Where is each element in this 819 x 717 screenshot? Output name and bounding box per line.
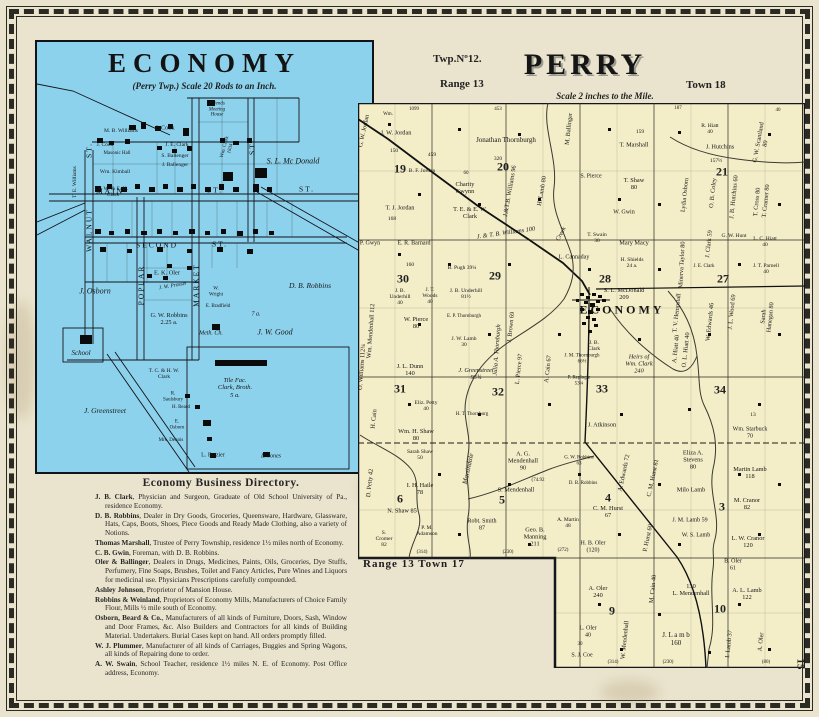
map-label: Jonathan Thornburgh <box>476 137 536 145</box>
map-label: J. Greenstreet <box>84 407 126 415</box>
building-block <box>191 184 196 189</box>
building-block <box>205 231 210 235</box>
building-block <box>207 437 212 441</box>
building-block <box>95 229 101 234</box>
town-block <box>598 295 602 298</box>
map-label: H. T. Thornburg <box>456 412 488 418</box>
section-number: 5 <box>499 493 505 508</box>
map-label: Eliza A. Stevens 80 <box>683 449 703 470</box>
house-dot <box>658 203 661 206</box>
map-label: B. F. Jordan <box>409 168 435 174</box>
map-label: Charity Gwynn <box>456 181 475 195</box>
map-label: 40 <box>776 108 781 114</box>
map-label: J. M. Thornburgh 66½ <box>564 353 599 364</box>
map-label: Mary Macy <box>619 239 649 246</box>
section-number: 6 <box>397 492 403 507</box>
house-dot <box>778 203 781 206</box>
building-block <box>125 139 130 144</box>
map-label: T. E. Williams <box>72 166 78 198</box>
map-label: E. R. Barnard <box>398 241 431 248</box>
town-block <box>586 296 590 299</box>
map-label: J. Hutchins <box>706 143 734 150</box>
map-label: P. Gwyn <box>360 241 380 248</box>
map-label: N. Shaw 85 <box>387 507 417 514</box>
map-label: A. G. Mendenhall 90 <box>508 450 538 471</box>
page-number: 15 <box>795 659 807 670</box>
map-label: J. Osborn <box>79 288 111 297</box>
paper-stain <box>6 300 36 420</box>
section-number: 20 <box>497 160 509 175</box>
building-block <box>135 184 140 189</box>
building-block <box>100 247 106 252</box>
building-block <box>157 146 162 150</box>
section-number: 19 <box>394 162 406 177</box>
town-block <box>594 324 598 327</box>
map-label: L. C. Hiatt 40 <box>753 236 777 248</box>
map-label: T. C. & H. W. Clark <box>149 368 179 380</box>
map-label: T. Marshall <box>620 141 649 148</box>
section-number: 29 <box>489 269 501 284</box>
atlas-page: ECONOMY (Perry Twp.) Scale 20 Rods to an… <box>0 0 819 717</box>
house-dot <box>620 413 623 416</box>
map-label: T. J. Jordan <box>386 204 415 211</box>
house-dot <box>508 263 511 266</box>
map-label: Heirs of Wm. Clark 240 <box>625 353 652 374</box>
building-block <box>189 229 195 234</box>
section-number: 31 <box>394 382 406 397</box>
range-town-label: Range 13 Town 17 <box>363 558 465 570</box>
map-label: J. B. Underhill 40 <box>389 288 410 306</box>
building-block <box>247 249 253 254</box>
building-block <box>212 324 220 330</box>
map-label: J. L a m b 160 <box>662 632 690 648</box>
directory-title: Economy Business Directory. <box>95 477 347 489</box>
map-label: (314) <box>608 660 619 666</box>
economy-map-title: ECONOMY <box>37 48 372 79</box>
map-label: (230) <box>503 550 514 556</box>
house-dot <box>618 533 621 536</box>
map-label: T. E. & E. W. Clark <box>453 206 487 220</box>
map-label: A. Martin 48 <box>557 517 579 529</box>
map-label: J. W. Good <box>257 329 292 338</box>
section-number: 27 <box>717 272 729 287</box>
map-label: L. Cannaday <box>559 255 590 262</box>
map-label: Mrs. Dennis <box>159 438 184 444</box>
map-label: I. H. Haile 78 <box>407 482 434 496</box>
map-label: 187 <box>674 106 682 112</box>
building-block <box>167 264 172 268</box>
map-label: 13 <box>750 412 756 418</box>
map-label: W. Gwin <box>613 210 634 217</box>
section-number: 33 <box>596 382 608 397</box>
perry-map-title: PERRY <box>500 48 670 82</box>
house-dot <box>598 603 601 606</box>
town-block <box>580 293 584 296</box>
map-label: M. B. Williams <box>104 128 138 134</box>
building-block <box>149 187 155 192</box>
map-label: SECOND <box>136 241 178 250</box>
building-block <box>163 184 168 189</box>
map-label: (74.92 <box>532 478 545 484</box>
building-block <box>141 231 147 235</box>
map-label: Milo Lamb <box>677 486 706 493</box>
map-label: J. Greenstreet 95¾ <box>458 367 493 381</box>
house-dot <box>488 333 491 336</box>
house-dot <box>688 408 691 411</box>
building-block <box>80 335 92 344</box>
economy-town-map: ECONOMY (Perry Twp.) Scale 20 Rods to an… <box>35 40 374 474</box>
paper-stain <box>600 680 660 704</box>
map-label: 459 <box>428 152 436 158</box>
town-block <box>588 330 592 333</box>
map-label: J. L. Dunn 140 <box>397 363 424 377</box>
house-dot <box>678 543 681 546</box>
house-dot <box>558 333 561 336</box>
map-label: J. T. Parnell 40 <box>753 263 779 275</box>
map-label: Wm. H. Shaw 80 <box>398 428 434 442</box>
map-label: G. W. Robbins 63 <box>564 455 593 466</box>
map-label: E. Bradfield <box>206 304 230 310</box>
house-dot <box>418 193 421 196</box>
building-block <box>237 231 243 236</box>
building-block <box>267 187 272 192</box>
map-label: Geo. B. Manning 211 <box>524 526 547 547</box>
building-block <box>253 229 258 234</box>
economy-map-subtitle: (Perry Twp.) Scale 20 Rods to an Inch. <box>37 81 372 91</box>
map-label: L. Jones <box>261 454 281 461</box>
map-label: Tile Fac. Clark, Broth. 5 a. <box>218 377 252 399</box>
house-dot <box>778 333 781 336</box>
map-label: MARKET <box>192 263 201 307</box>
map-label: B. Oler 61 <box>724 558 742 571</box>
house-dot <box>768 648 771 651</box>
directory-entry: C. B. Gwin, Foreman, with D. B. Robbins. <box>95 549 347 558</box>
map-label: School <box>71 350 90 358</box>
section-number: 10 <box>714 602 726 617</box>
map-label: S. J. Coe <box>571 653 592 660</box>
directory-entry: Thomas Marshall, Trustee of Perry Townsh… <box>95 539 347 548</box>
house-dot <box>738 603 741 606</box>
house-dot <box>758 403 761 406</box>
building-block <box>255 168 267 178</box>
section-number: 4 <box>605 491 611 506</box>
map-label: 7 a. <box>252 312 261 319</box>
business-directory: Economy Business Directory. J. B. Clark,… <box>95 477 347 679</box>
map-label: Sarah Shaw 50 <box>407 449 433 461</box>
map-label: Masonic Hall <box>103 151 130 157</box>
house-dot <box>398 253 401 256</box>
map-label: Friends Meeting House <box>209 102 225 119</box>
map-label: S. L. Mc Donald <box>267 158 320 167</box>
map-label: WALNUT <box>85 208 94 252</box>
map-label: J. E. Clark <box>165 142 188 148</box>
house-dot <box>658 268 661 271</box>
map-label: J. W. Jordan <box>381 129 412 136</box>
map-label: (314) <box>417 550 428 556</box>
directory-entry: A. W. Swain, School Teacher, residence 1… <box>95 660 347 678</box>
map-label: ST. <box>299 185 315 194</box>
building-block <box>177 187 183 192</box>
building-block <box>183 128 189 136</box>
map-label: 1099 <box>409 107 419 113</box>
map-label: H. B. Oler (120) <box>581 540 606 553</box>
directory-entries: J. B. Clark, Physician and Surgeon, Grad… <box>95 493 347 678</box>
building-block <box>157 229 162 234</box>
map-label: G. W. Robbins 2.25 a. <box>150 312 187 326</box>
map-label: Robt. Smith 87 <box>467 518 496 531</box>
map-label: Wm. <box>383 112 393 118</box>
map-label: 150 <box>390 148 398 154</box>
perry-township-map: Wm.109945318740J. W. Jordan150459G. W. J… <box>358 103 805 668</box>
map-label: T. Shaw 80 <box>624 177 645 191</box>
section-number: 9 <box>609 604 615 619</box>
town-block <box>592 293 596 296</box>
map-label: D. B. Robbins <box>569 481 598 487</box>
map-label: S. Pierce <box>580 174 601 181</box>
map-label: E. P. Thornburgh <box>447 314 481 320</box>
map-label: A. L. Lamb 122 <box>732 587 761 601</box>
map-label: W. S. Lamb <box>682 533 710 540</box>
house-dot <box>388 123 391 126</box>
building-block <box>203 420 211 426</box>
perry-twp-number: Twp.Nº12. <box>433 53 482 65</box>
house-dot <box>438 473 441 476</box>
house-dot <box>658 483 661 486</box>
map-label: Martin Lamb 118 <box>733 466 766 480</box>
house-dot <box>458 128 461 131</box>
building-block <box>147 274 152 278</box>
map-label: S. Ballenger <box>161 153 188 159</box>
house-dot <box>408 403 411 406</box>
map-label: (272) <box>558 548 569 554</box>
map-label: Wm. Starbuck 70 <box>733 426 768 439</box>
map-label: 30 <box>578 642 583 648</box>
town-block <box>582 322 586 325</box>
map-label: (230) <box>663 660 674 666</box>
building-block <box>215 360 267 366</box>
map-label: J. Cook <box>97 142 114 148</box>
map-label: H. Shields 24 a. <box>621 257 644 269</box>
map-label: 168 <box>388 216 396 222</box>
map-label: J. Ballenger <box>162 162 188 168</box>
map-label: E. Osborn <box>170 419 185 430</box>
house-dot <box>678 131 681 134</box>
map-label: A. Oler 240 <box>589 585 608 599</box>
directory-entry: Osborn, Beard & Co., Manufacturers of al… <box>95 614 347 640</box>
map-label: Eliz. Petty 40 <box>415 400 438 412</box>
map-label: J. M. Lamb 59 <box>672 518 707 525</box>
map-label: J. T. Woods 40 <box>422 287 437 305</box>
town-block <box>592 318 596 321</box>
house-dot <box>708 651 711 654</box>
map-label: C. M. Hurst 67 <box>593 505 623 519</box>
map-label: J. Atkinson <box>588 421 616 428</box>
section-number: 32 <box>492 385 504 400</box>
building-block <box>221 229 226 234</box>
map-label: R. Saulsbury <box>163 391 183 402</box>
map-label: S. Cromer 82 <box>376 530 393 548</box>
map-label: J. Cook <box>155 124 174 131</box>
house-dot <box>608 128 611 131</box>
building-block <box>125 229 130 234</box>
directory-entry: Robbins & Weinland, Proprietors of Econo… <box>95 596 347 614</box>
map-label: 160 <box>406 262 414 268</box>
map-label: S. L. McDonald 209 <box>604 287 645 301</box>
section-number: 28 <box>599 272 611 287</box>
directory-entry: J. B. Clark, Physician and Surgeon, Grad… <box>95 493 347 511</box>
building-block <box>127 249 132 253</box>
section-number: 30 <box>397 272 409 287</box>
map-label: G. W. Hunt <box>721 233 746 239</box>
map-label: Meth. Ch. <box>199 331 223 338</box>
map-label: 159 <box>636 129 644 135</box>
map-label: T. Swain 30 <box>587 232 606 244</box>
directory-entry: Oler & Ballinger, Dealers in Drugs, Medi… <box>95 558 347 584</box>
map-label: (80) <box>762 660 770 666</box>
directory-entry: Ashley Johnson, Proprietor of Mansion Ho… <box>95 586 347 595</box>
map-label: ST. <box>212 240 228 249</box>
perry-scale-label: Scale 2 inches to the Mile. <box>515 91 695 101</box>
map-label: Wm. Kimball <box>100 169 130 175</box>
building-block <box>253 184 259 192</box>
map-label: ECONOMY <box>580 303 665 316</box>
map-label: R. Hiatt 40 <box>701 123 718 135</box>
map-label: P. M. Adamson <box>416 525 437 537</box>
map-label: POPLAR <box>137 265 146 306</box>
map-label: H. Beard <box>172 405 190 411</box>
house-dot <box>738 263 741 266</box>
map-label: M. Cranor 82 <box>734 497 760 511</box>
map-label: MAIN <box>96 187 124 196</box>
house-dot <box>458 533 461 536</box>
house-dot <box>618 198 621 201</box>
map-label: B. Pugh 39¼ <box>448 265 477 271</box>
building-block <box>187 249 192 253</box>
map-label: W. Pierce 80 <box>404 316 428 330</box>
house-dot <box>548 403 551 406</box>
map-label: L. Frazier <box>201 453 225 460</box>
building-block <box>223 172 233 181</box>
building-block <box>163 276 168 280</box>
perry-range-label: Range 13 <box>440 78 484 90</box>
house-dot <box>638 338 641 341</box>
map-label: E. K. Oler <box>154 269 180 276</box>
section-number: 34 <box>714 383 726 398</box>
map-label: L. Oler 40 <box>579 625 596 638</box>
map-label: J. W. Lamb 30 <box>451 336 476 348</box>
map-label: P. Replogle 53¼ <box>568 375 591 386</box>
map-label: 157½ <box>710 158 722 164</box>
map-label: J. B. Underhill 81½ <box>450 288 482 300</box>
map-label: ST. <box>248 139 257 155</box>
directory-entry: W. J. Plummer, Manufacturer of all kinds… <box>95 642 347 660</box>
house-dot <box>658 613 661 616</box>
map-label: 453 <box>494 107 502 113</box>
section-number: 21 <box>716 165 728 180</box>
house-dot <box>588 268 591 271</box>
directory-entry: D. B. Robbins, Dealer in Dry Goods, Groc… <box>95 512 347 538</box>
building-block <box>233 187 239 192</box>
house-dot <box>778 483 781 486</box>
map-label: 60 <box>464 171 469 177</box>
building-block <box>185 394 190 398</box>
building-block <box>269 231 274 235</box>
map-label: 130 L. Mendenhall <box>672 583 709 597</box>
map-label: ST. <box>207 186 223 195</box>
map-label: W. Wright <box>209 286 223 297</box>
map-label: L. W. Cranor 120 <box>732 535 765 549</box>
map-label: J. E. Clark <box>693 264 714 270</box>
map-label: J. B. Clark <box>588 340 600 352</box>
house-dot <box>578 473 581 476</box>
building-block <box>173 231 178 235</box>
section-number: 3 <box>719 500 725 515</box>
perry-town-label: Town 18 <box>686 79 726 91</box>
building-block <box>109 231 114 235</box>
map-label: ST. <box>85 142 94 158</box>
building-block <box>141 122 146 129</box>
building-block <box>195 405 200 409</box>
map-label: D. B. Robbins <box>289 282 331 290</box>
